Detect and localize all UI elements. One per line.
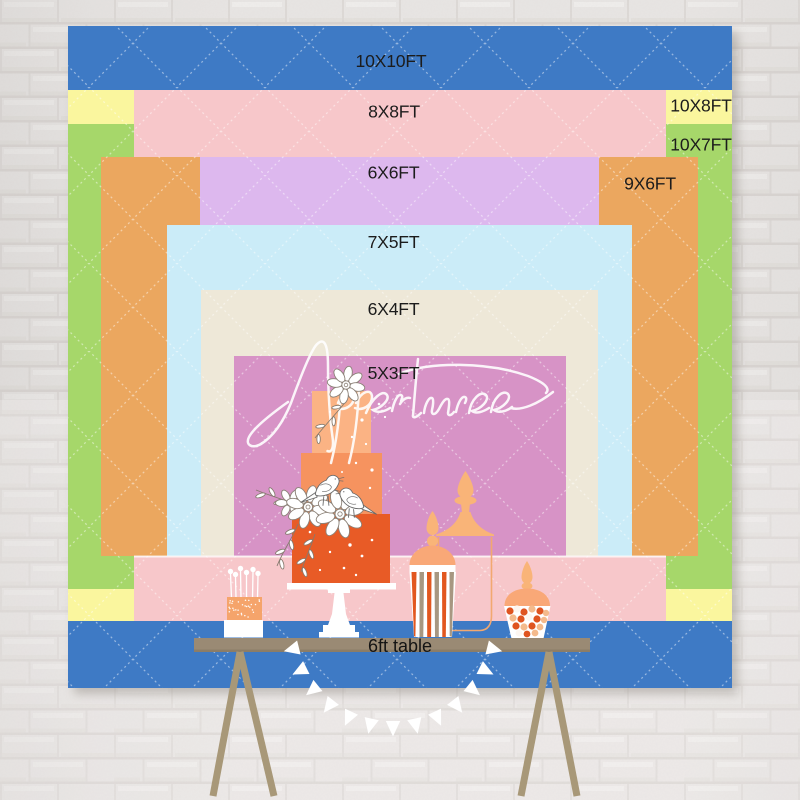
svg-text:10X10FT: 10X10FT xyxy=(356,51,427,71)
svg-text:10X7FT: 10X7FT xyxy=(670,135,732,155)
svg-text:9X6FT: 9X6FT xyxy=(624,174,676,194)
svg-text:8X8FT: 8X8FT xyxy=(368,102,420,122)
svg-text:6ft table: 6ft table xyxy=(368,636,432,656)
svg-text:6X6FT: 6X6FT xyxy=(368,163,420,183)
svg-text:10X8FT: 10X8FT xyxy=(670,96,732,116)
svg-text:7X5FT: 7X5FT xyxy=(368,232,420,252)
svg-text:6X4FT: 6X4FT xyxy=(368,299,420,319)
svg-text:5X3FT: 5X3FT xyxy=(368,363,420,383)
